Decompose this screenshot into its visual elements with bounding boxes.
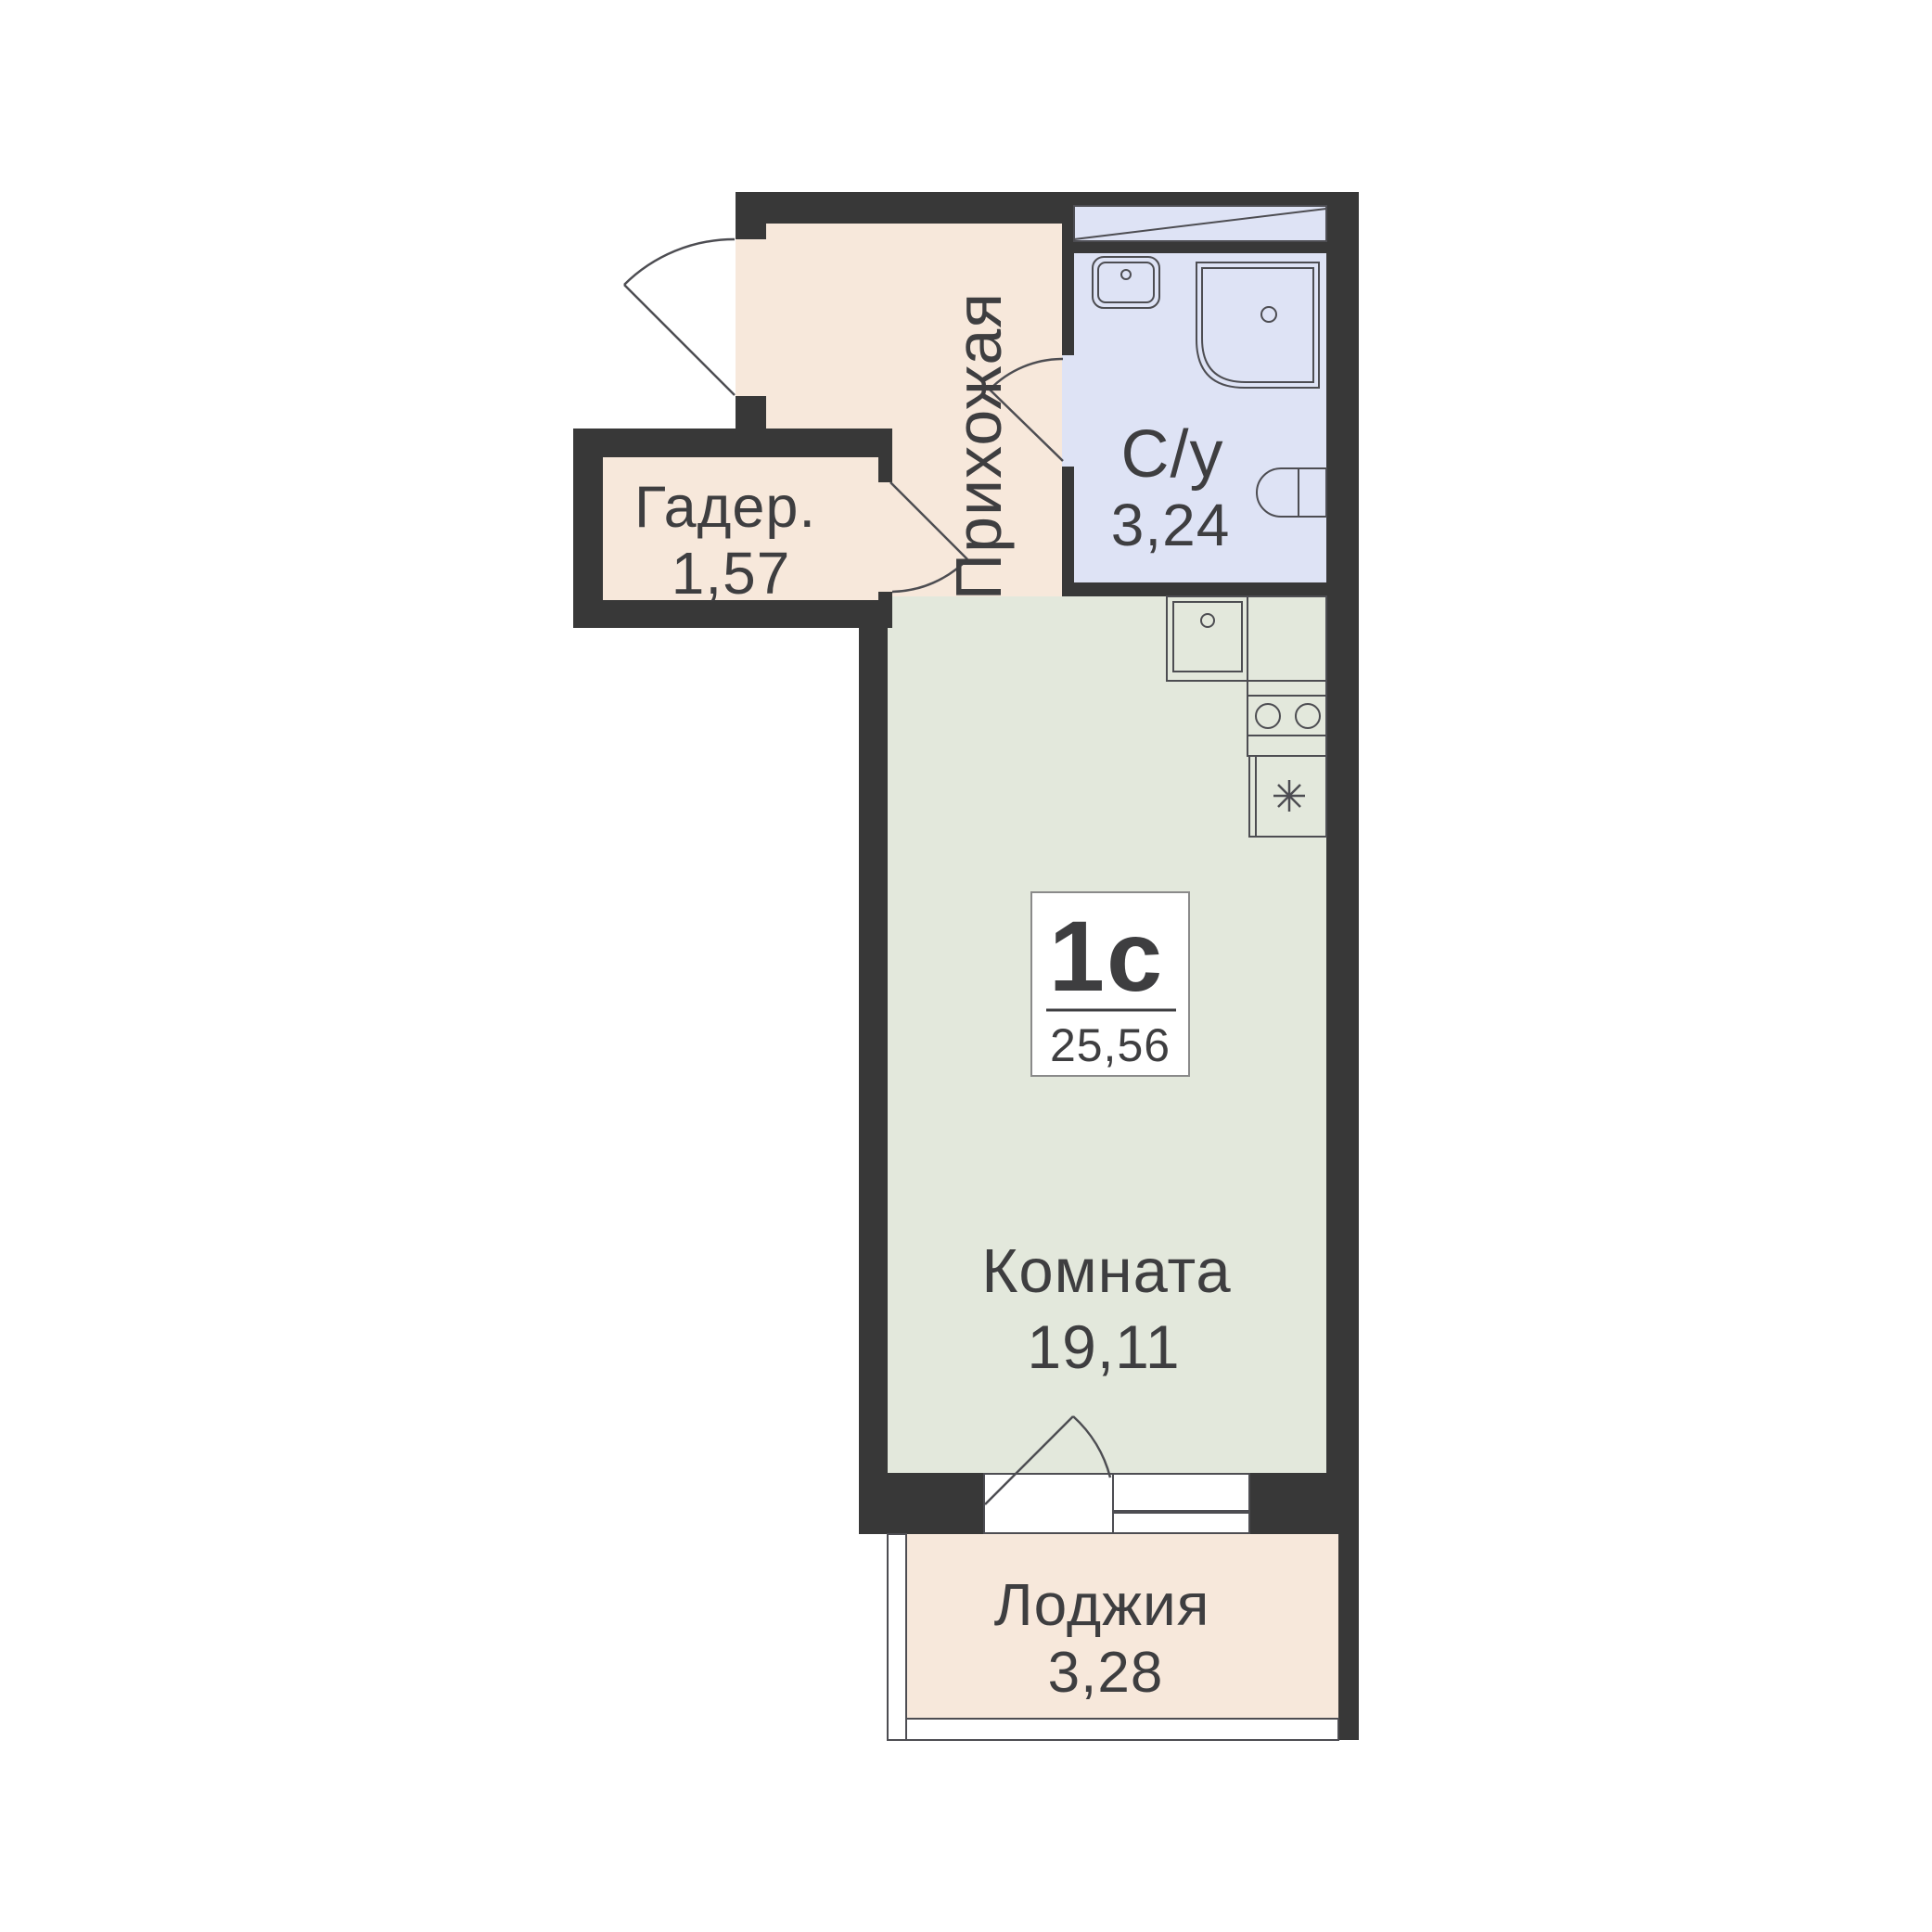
wall-segment xyxy=(859,628,888,1473)
wall-segment xyxy=(1326,253,1359,1473)
wall-segment xyxy=(1249,1473,1359,1534)
wall-segment xyxy=(736,224,766,239)
wardrobe-area: 1,57 xyxy=(672,540,791,607)
wall-segment xyxy=(1062,582,1326,596)
bathroom-label: С/у xyxy=(1121,417,1224,492)
loggia-label: Лоджия xyxy=(994,1571,1210,1638)
wall-segment xyxy=(878,457,892,482)
unit-type-label: 1с xyxy=(1049,900,1164,1012)
loggia-parapet-window xyxy=(906,1719,1338,1740)
wall-segment xyxy=(859,1473,984,1534)
floor-plan-page: Гадер. 1,57 Прихожая С/у 3,24 1с 25,56 К… xyxy=(0,0,1932,1932)
wall-segment xyxy=(878,592,892,600)
wardrobe-door-opening xyxy=(878,482,892,592)
wall-segment xyxy=(1338,1534,1359,1740)
wall-segment xyxy=(1062,467,1074,582)
wall-segment xyxy=(736,192,1359,206)
bathroom-door-opening xyxy=(1062,355,1074,467)
wall-segment xyxy=(1062,224,1074,355)
floor-plan: Гадер. 1,57 Прихожая С/у 3,24 1с 25,56 К… xyxy=(0,0,1932,1932)
living-room-label: Комната xyxy=(981,1236,1231,1306)
living-room-area: 19,11 xyxy=(1027,1312,1180,1381)
loggia-side-wall xyxy=(888,1534,906,1740)
unit-area-label: 25,56 xyxy=(1050,1019,1171,1071)
wall-segment xyxy=(573,457,603,600)
balcony-door-opening xyxy=(984,1474,1113,1533)
bathroom-area: 3,24 xyxy=(1111,492,1231,558)
wall-segment xyxy=(736,396,766,429)
wall-segment xyxy=(736,206,1074,224)
wardrobe-label: Гадер. xyxy=(634,475,816,540)
wall-segment xyxy=(1326,206,1359,253)
window-opening xyxy=(1113,1474,1249,1533)
hallway-label: Прихожая xyxy=(942,292,1015,600)
wall-segment xyxy=(573,429,892,457)
wall-segment xyxy=(1074,241,1326,253)
fridge-snowflake-icon xyxy=(1273,780,1305,812)
loggia-area: 3,28 xyxy=(1048,1641,1164,1705)
